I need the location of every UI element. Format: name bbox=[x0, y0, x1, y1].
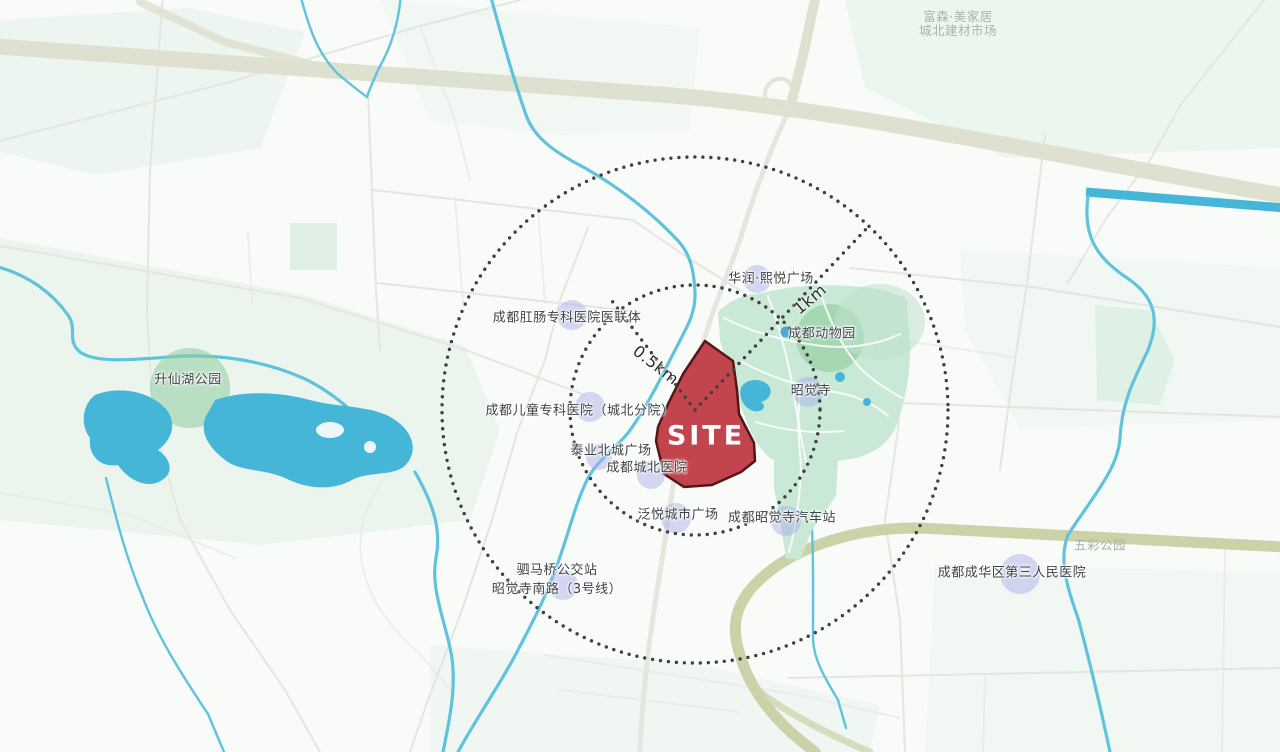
label-chengbei-hospital: 成都城北医院 bbox=[606, 457, 687, 476]
label-simaqiao-line1: 驷马桥公交站 bbox=[492, 561, 622, 580]
label-fusen-market: 富森·美家居 城北建材市场 bbox=[919, 10, 997, 38]
label-fanyue-city-plaza: 泛悦城市广场 bbox=[637, 504, 718, 523]
label-chengdu-zoo: 成都动物园 bbox=[788, 323, 856, 342]
label-fusen-market-line1: 富森·美家居 bbox=[919, 10, 997, 24]
label-fusen-market-line2: 城北建材市场 bbox=[919, 24, 997, 38]
label-cr-xiyue-plaza: 华润·熙悦广场 bbox=[728, 268, 814, 287]
site-context-map: 富森·美家居 城北建材市场 成都肛肠专科医院医联体 华润·熙悦广场 成都动物园 … bbox=[0, 0, 1280, 752]
label-shengxian-lake-park: 升仙湖公园 bbox=[154, 369, 222, 388]
label-zhaojue-temple: 昭觉寺 bbox=[791, 380, 832, 399]
label-third-peoples-hospital: 成都成华区第三人民医院 bbox=[938, 562, 1087, 581]
label-children-hospital: 成都儿童专科医院（城北分院） bbox=[485, 400, 674, 419]
label-zhaojuesi-bus-station: 成都昭觉寺汽车站 bbox=[728, 507, 836, 526]
label-simaqiao-line2: 昭觉寺南路（3号线） bbox=[492, 580, 622, 599]
site-label: SITE bbox=[667, 421, 745, 452]
label-anorectal-hospital: 成都肛肠专科医院医联体 bbox=[493, 307, 642, 326]
label-simaqiao-bus-stop: 驷马桥公交站 昭觉寺南路（3号线） bbox=[492, 561, 622, 599]
label-wucai-park: 五彩公园 bbox=[1074, 535, 1126, 554]
north-creek bbox=[300, 0, 401, 97]
